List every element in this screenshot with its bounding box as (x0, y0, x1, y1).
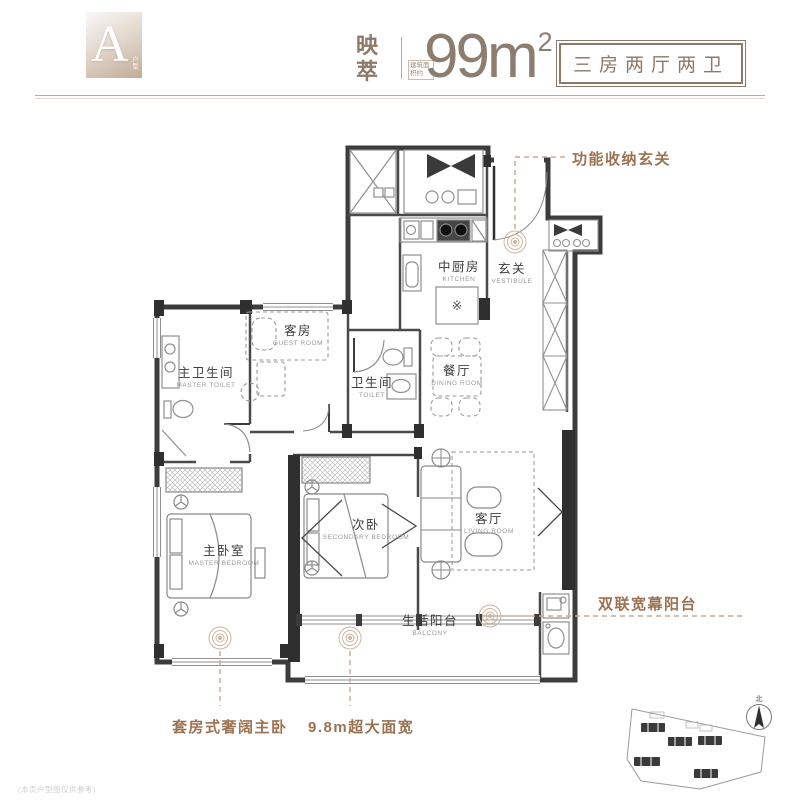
vestibule-cabinets (543, 220, 598, 410)
room-label-guest-room: 客房 GUEST ROOM (273, 320, 323, 347)
annotation-entry-storage: 功能收纳玄关 (572, 148, 671, 169)
guest-room-door (303, 404, 329, 432)
room-label-vestibule: 玄关 VESTIBULE (491, 258, 532, 285)
room-label-balcony: 生活阳台 BALCONY (402, 610, 458, 637)
dining-room-name-zh: 餐厅 (431, 360, 482, 379)
entry-door (494, 166, 547, 240)
compass-icon (747, 705, 772, 730)
footnote-disclaimer: (本页户型图仅供参考) (18, 784, 96, 795)
balcony-name-zh: 生活阳台 (402, 610, 458, 629)
exterior-walls (157, 148, 600, 680)
toilet-name-zh: 卫生间 (351, 372, 393, 391)
room-label-secondary-bedroom: 次卧 SECONDARY BEDROOM (323, 514, 410, 541)
service-shafts (350, 150, 483, 213)
annotation-master-suite: 套房式奢阔主卧 (172, 716, 288, 737)
balcony-fixtures (543, 594, 569, 654)
secondary-bedroom-name-zh: 次卧 (323, 514, 410, 533)
room-label-master-bedroom: 主卧室 MASTER BEDROOM (189, 540, 260, 567)
room-label-master-toilet: 主卫生间 MASTER TOILET (176, 362, 235, 389)
vestibule-name-zh: 玄关 (491, 258, 532, 277)
room-label-kitchen: 中厨房 KITCHEN (438, 256, 480, 283)
living-room-name-en: LIVING ROOM (464, 528, 514, 535)
floor-plan-drawing (0, 0, 800, 800)
toilet-name-en: TOILET (351, 392, 393, 399)
room-label-dining-room: 餐厅 DINING ROOM (431, 360, 482, 387)
room-label-toilet: 卫生间 TOILET (351, 372, 393, 399)
annotation-wide-balcony: 双联宽幕阳台 (598, 593, 697, 614)
guest-room-name-en: GUEST ROOM (273, 340, 323, 347)
interior-walls (157, 148, 567, 680)
master-toilet-name-en: MASTER TOILET (176, 382, 235, 389)
master-bedroom-name-en: MASTER BEDROOM (189, 560, 260, 567)
shaft-vents (427, 154, 475, 178)
dining-room-name-en: DINING ROOM (431, 380, 482, 387)
guest-room-name-zh: 客房 (273, 320, 323, 339)
compass-north-label: 北 (756, 694, 763, 704)
kitchen-name-zh: 中厨房 (438, 256, 480, 275)
site-plan (627, 709, 765, 789)
secondary-bedroom-name-en: SECONDARY BEDROOM (323, 534, 410, 541)
balcony-name-en: BALCONY (402, 630, 458, 637)
annotation-width: 9.8m超大面宽 (308, 716, 414, 737)
vestibule-name-en: VESTIBULE (491, 278, 532, 285)
room-label-living-room: 客厅 LIVING ROOM (464, 508, 514, 535)
kitchen-name-en: KITCHEN (438, 276, 480, 283)
master-bedroom-name-zh: 主卧室 (189, 540, 260, 559)
floor-plan-page: A 户型 映萃 建筑面积约 99m2 三房两厅两卫 (0, 0, 800, 800)
living-room-name-zh: 客厅 (464, 508, 514, 527)
master-toilet-name-zh: 主卫生间 (176, 362, 235, 381)
kitchen-island-symbol: ※ (452, 298, 463, 314)
master-toilet-fixtures (162, 336, 250, 456)
